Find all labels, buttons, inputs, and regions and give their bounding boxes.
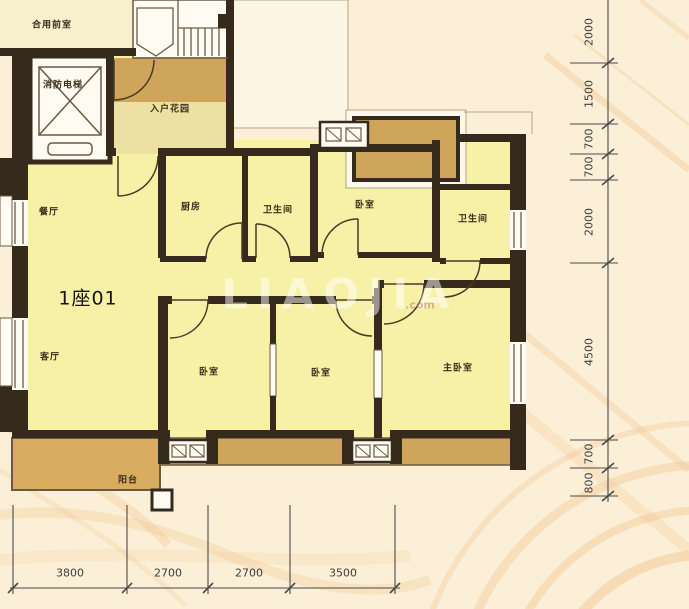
room-label-bath2: 卫生间 [458,212,488,225]
room-label-shared-lobby: 合用前室 [32,18,72,31]
room-label-bedroom-top: 卧室 [355,198,375,211]
dim-right-0: 2000 [583,18,596,46]
dim-right-2: 700 [583,129,596,150]
dim-bottom-1: 2700 [154,567,182,580]
dim-right-4: 2000 [583,208,596,236]
room-label-bath1: 卫生间 [263,203,293,216]
dim-right-6: 700 [583,444,596,465]
dim-right-7: 800 [583,473,596,494]
dim-right-3: 700 [583,157,596,178]
watermark-suffix: .com [405,299,435,312]
room-label-bedroom-b: 卧室 [311,366,331,379]
dim-right-1: 1500 [583,80,596,108]
room-label-balcony: 阳台 [118,473,138,486]
elevator-icon [30,56,110,162]
dim-right-5: 4500 [583,338,596,366]
room-label-fire-elevator: 消防电梯 [43,78,83,91]
floor-plan-canvas: 合用前室 消防电梯 入户花园 餐厅 厨房 卫生间 卧室 卫生间 客厅 卧室 卧室… [0,0,689,609]
room-label-bedroom-a: 卧室 [199,365,219,378]
room-label-master: 主卧室 [443,361,473,374]
dim-bottom-0: 3800 [56,567,84,580]
room-label-entry-garden: 入户花园 [150,102,190,115]
dim-bottom-3: 3500 [329,567,357,580]
unit-number-label: 1座01 [58,284,117,311]
room-label-living: 客厅 [40,350,60,363]
dim-bottom-2: 2700 [235,567,263,580]
room-label-dining: 餐厅 [39,205,59,218]
room-label-kitchen: 厨房 [181,200,201,213]
